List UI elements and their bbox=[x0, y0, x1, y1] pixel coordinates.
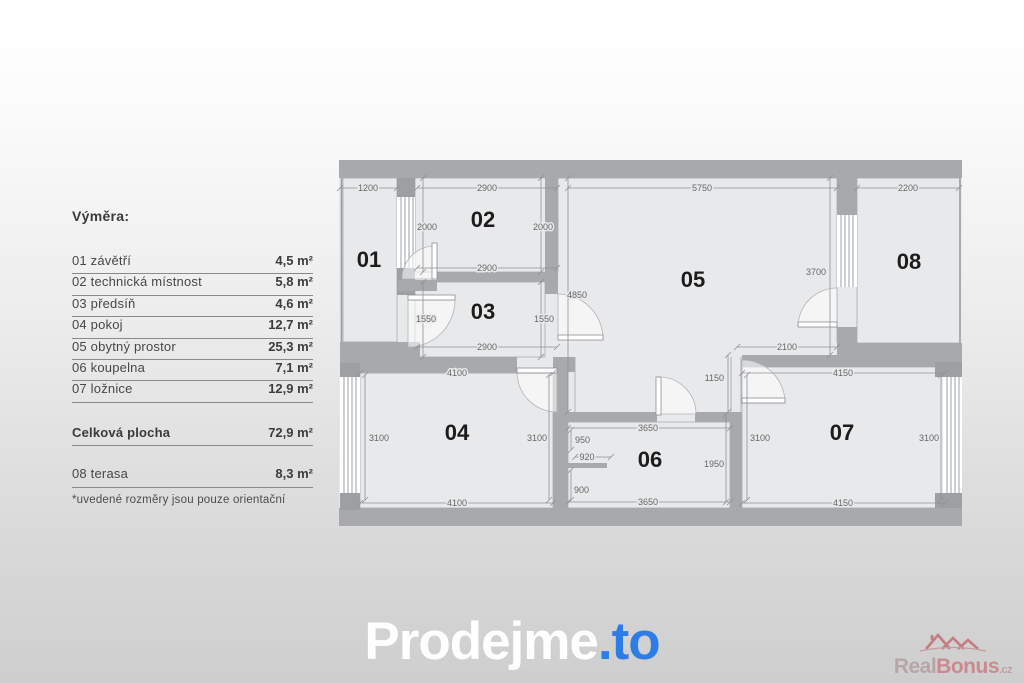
logo-main: Prodejme bbox=[364, 612, 598, 671]
room-label-06: 06 bbox=[638, 447, 662, 472]
dimension-label: 2200 bbox=[898, 183, 918, 193]
window-room04-left bbox=[340, 377, 360, 493]
legend-row-label: 04 pokoj bbox=[72, 317, 123, 332]
prodejmeto-logo: Prodejme.to bbox=[364, 611, 659, 672]
dimension-label: 3100 bbox=[750, 433, 770, 443]
legend-footnote: *uvedené rozměry jsou pouze orientační bbox=[72, 494, 313, 506]
dimension-label: 4100 bbox=[447, 498, 467, 508]
dimension-label: 1150 bbox=[705, 373, 724, 383]
dimension-label: 4850 bbox=[567, 290, 587, 300]
dimension-label: 900 bbox=[574, 485, 589, 495]
room-label-04: 04 bbox=[445, 420, 470, 445]
dimension-label: 3650 bbox=[638, 423, 658, 433]
window-terrace-08 bbox=[837, 215, 857, 287]
area-legend: Výměra: 01 závětří4,5 m²02 technická mís… bbox=[72, 208, 313, 506]
dimension-label: 5750 bbox=[692, 183, 712, 193]
legend-row: 01 závětří4,5 m² bbox=[72, 253, 313, 274]
legend-row-value: 12,7 m² bbox=[268, 317, 313, 332]
legend-row-value: 5,8 m² bbox=[275, 274, 313, 289]
watermark-real: Real bbox=[894, 655, 936, 678]
legend-row-value: 12,9 m² bbox=[268, 381, 313, 396]
legend-total-row: Celková plocha 72,9 m² bbox=[72, 425, 313, 446]
legend-row-label: 01 závětří bbox=[72, 253, 131, 268]
room-label-08: 08 bbox=[897, 249, 921, 274]
dimension-label: 2900 bbox=[477, 263, 497, 273]
dimension-label: 3100 bbox=[919, 433, 939, 443]
dimension-label: 1950 bbox=[704, 459, 724, 469]
legend-row-label: 03 předsíň bbox=[72, 296, 135, 311]
dimension-label: 2100 bbox=[777, 342, 797, 352]
dimension-label: 4100 bbox=[447, 368, 467, 378]
watermark-tld: .cz bbox=[999, 664, 1012, 676]
legend-row: 03 předsíň4,6 m² bbox=[72, 296, 313, 317]
legend-terrace-value: 8,3 m² bbox=[275, 466, 313, 481]
dimension-label: 3650 bbox=[638, 497, 658, 507]
room-label-07: 07 bbox=[830, 420, 854, 445]
dimension-label: 950 bbox=[575, 435, 590, 445]
dimension-label: 2900 bbox=[477, 342, 497, 352]
legend-title: Výměra: bbox=[72, 208, 313, 224]
dimension-label: 920 bbox=[579, 452, 594, 462]
legend-row-value: 25,3 m² bbox=[268, 339, 313, 354]
legend-row-value: 4,5 m² bbox=[275, 253, 313, 268]
dimension-label: 1550 bbox=[416, 314, 436, 324]
legend-total-label: Celková plocha bbox=[72, 425, 170, 440]
logo-suffix: .to bbox=[598, 612, 660, 671]
dimension-label: 3100 bbox=[369, 433, 389, 443]
dimension-label: 2900 bbox=[477, 183, 497, 193]
dimension-label: 4150 bbox=[833, 368, 853, 378]
dimension-label: 2000 bbox=[417, 222, 437, 232]
legend-row: 02 technická místnost5,8 m² bbox=[72, 274, 313, 295]
floor-plan: 1200290057502200200020002900155015502900… bbox=[335, 150, 975, 540]
doorway-07 bbox=[730, 357, 742, 412]
legend-row: 06 koupelna7,1 m² bbox=[72, 360, 313, 381]
legend-row-label: 07 ložnice bbox=[72, 381, 133, 396]
dimension-label: 3700 bbox=[806, 267, 826, 277]
dimension-label: 1550 bbox=[534, 314, 554, 324]
dimension-label: 1200 bbox=[358, 183, 378, 193]
room-label-02: 02 bbox=[471, 207, 495, 232]
legend-row: 07 ložnice12,9 m² bbox=[72, 381, 313, 402]
dimension-label: 3100 bbox=[527, 433, 547, 443]
legend-row: 05 obytný prostor25,3 m² bbox=[72, 339, 313, 360]
legend-row-value: 7,1 m² bbox=[275, 360, 313, 375]
legend-terrace-label: 08 terasa bbox=[72, 466, 128, 481]
window-room07-right bbox=[943, 377, 962, 493]
legend-terrace-row: 08 terasa 8,3 m² bbox=[72, 466, 313, 487]
dimension-label: 2000 bbox=[533, 222, 553, 232]
legend-rows: 01 závětří4,5 m²02 technická místnost5,8… bbox=[72, 253, 313, 403]
legend-row-label: 05 obytný prostor bbox=[72, 339, 176, 354]
dimension-label: 4150 bbox=[833, 498, 853, 508]
legend-total-value: 72,9 m² bbox=[268, 425, 313, 440]
room-label-03: 03 bbox=[471, 299, 495, 324]
room-label-01: 01 bbox=[357, 247, 381, 272]
watermark-bonus: Bonus bbox=[936, 655, 999, 678]
realbonus-watermark: RealBonus.cz bbox=[888, 627, 1018, 679]
legend-row: 04 pokoj12,7 m² bbox=[72, 317, 313, 338]
legend-row-value: 4,6 m² bbox=[275, 296, 313, 311]
room-label-05: 05 bbox=[681, 267, 705, 292]
realbonus-houses-icon bbox=[918, 627, 988, 653]
legend-row-label: 06 koupelna bbox=[72, 360, 145, 375]
legend-row-label: 02 technická místnost bbox=[72, 274, 202, 289]
